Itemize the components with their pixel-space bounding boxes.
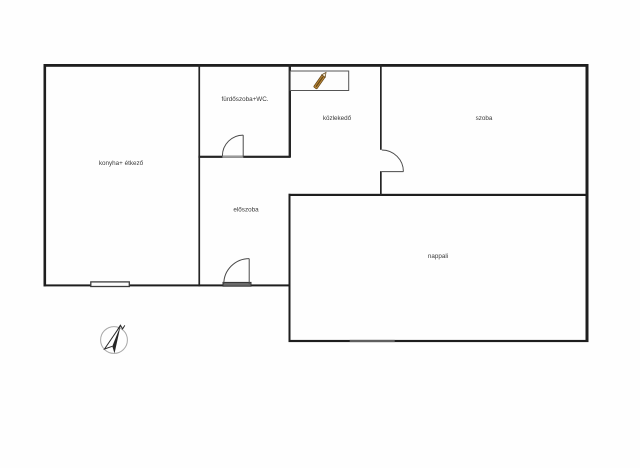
svg-text:nappali: nappali	[428, 253, 448, 260]
svg-text:előszoba: előszoba	[233, 207, 259, 214]
svg-text:szoba: szoba	[476, 115, 493, 122]
svg-text:közlekedő: közlekedő	[323, 115, 352, 122]
svg-text:fürdőszoba+WC.: fürdőszoba+WC.	[221, 96, 268, 103]
svg-text:konyha+ étkező: konyha+ étkező	[99, 160, 144, 167]
